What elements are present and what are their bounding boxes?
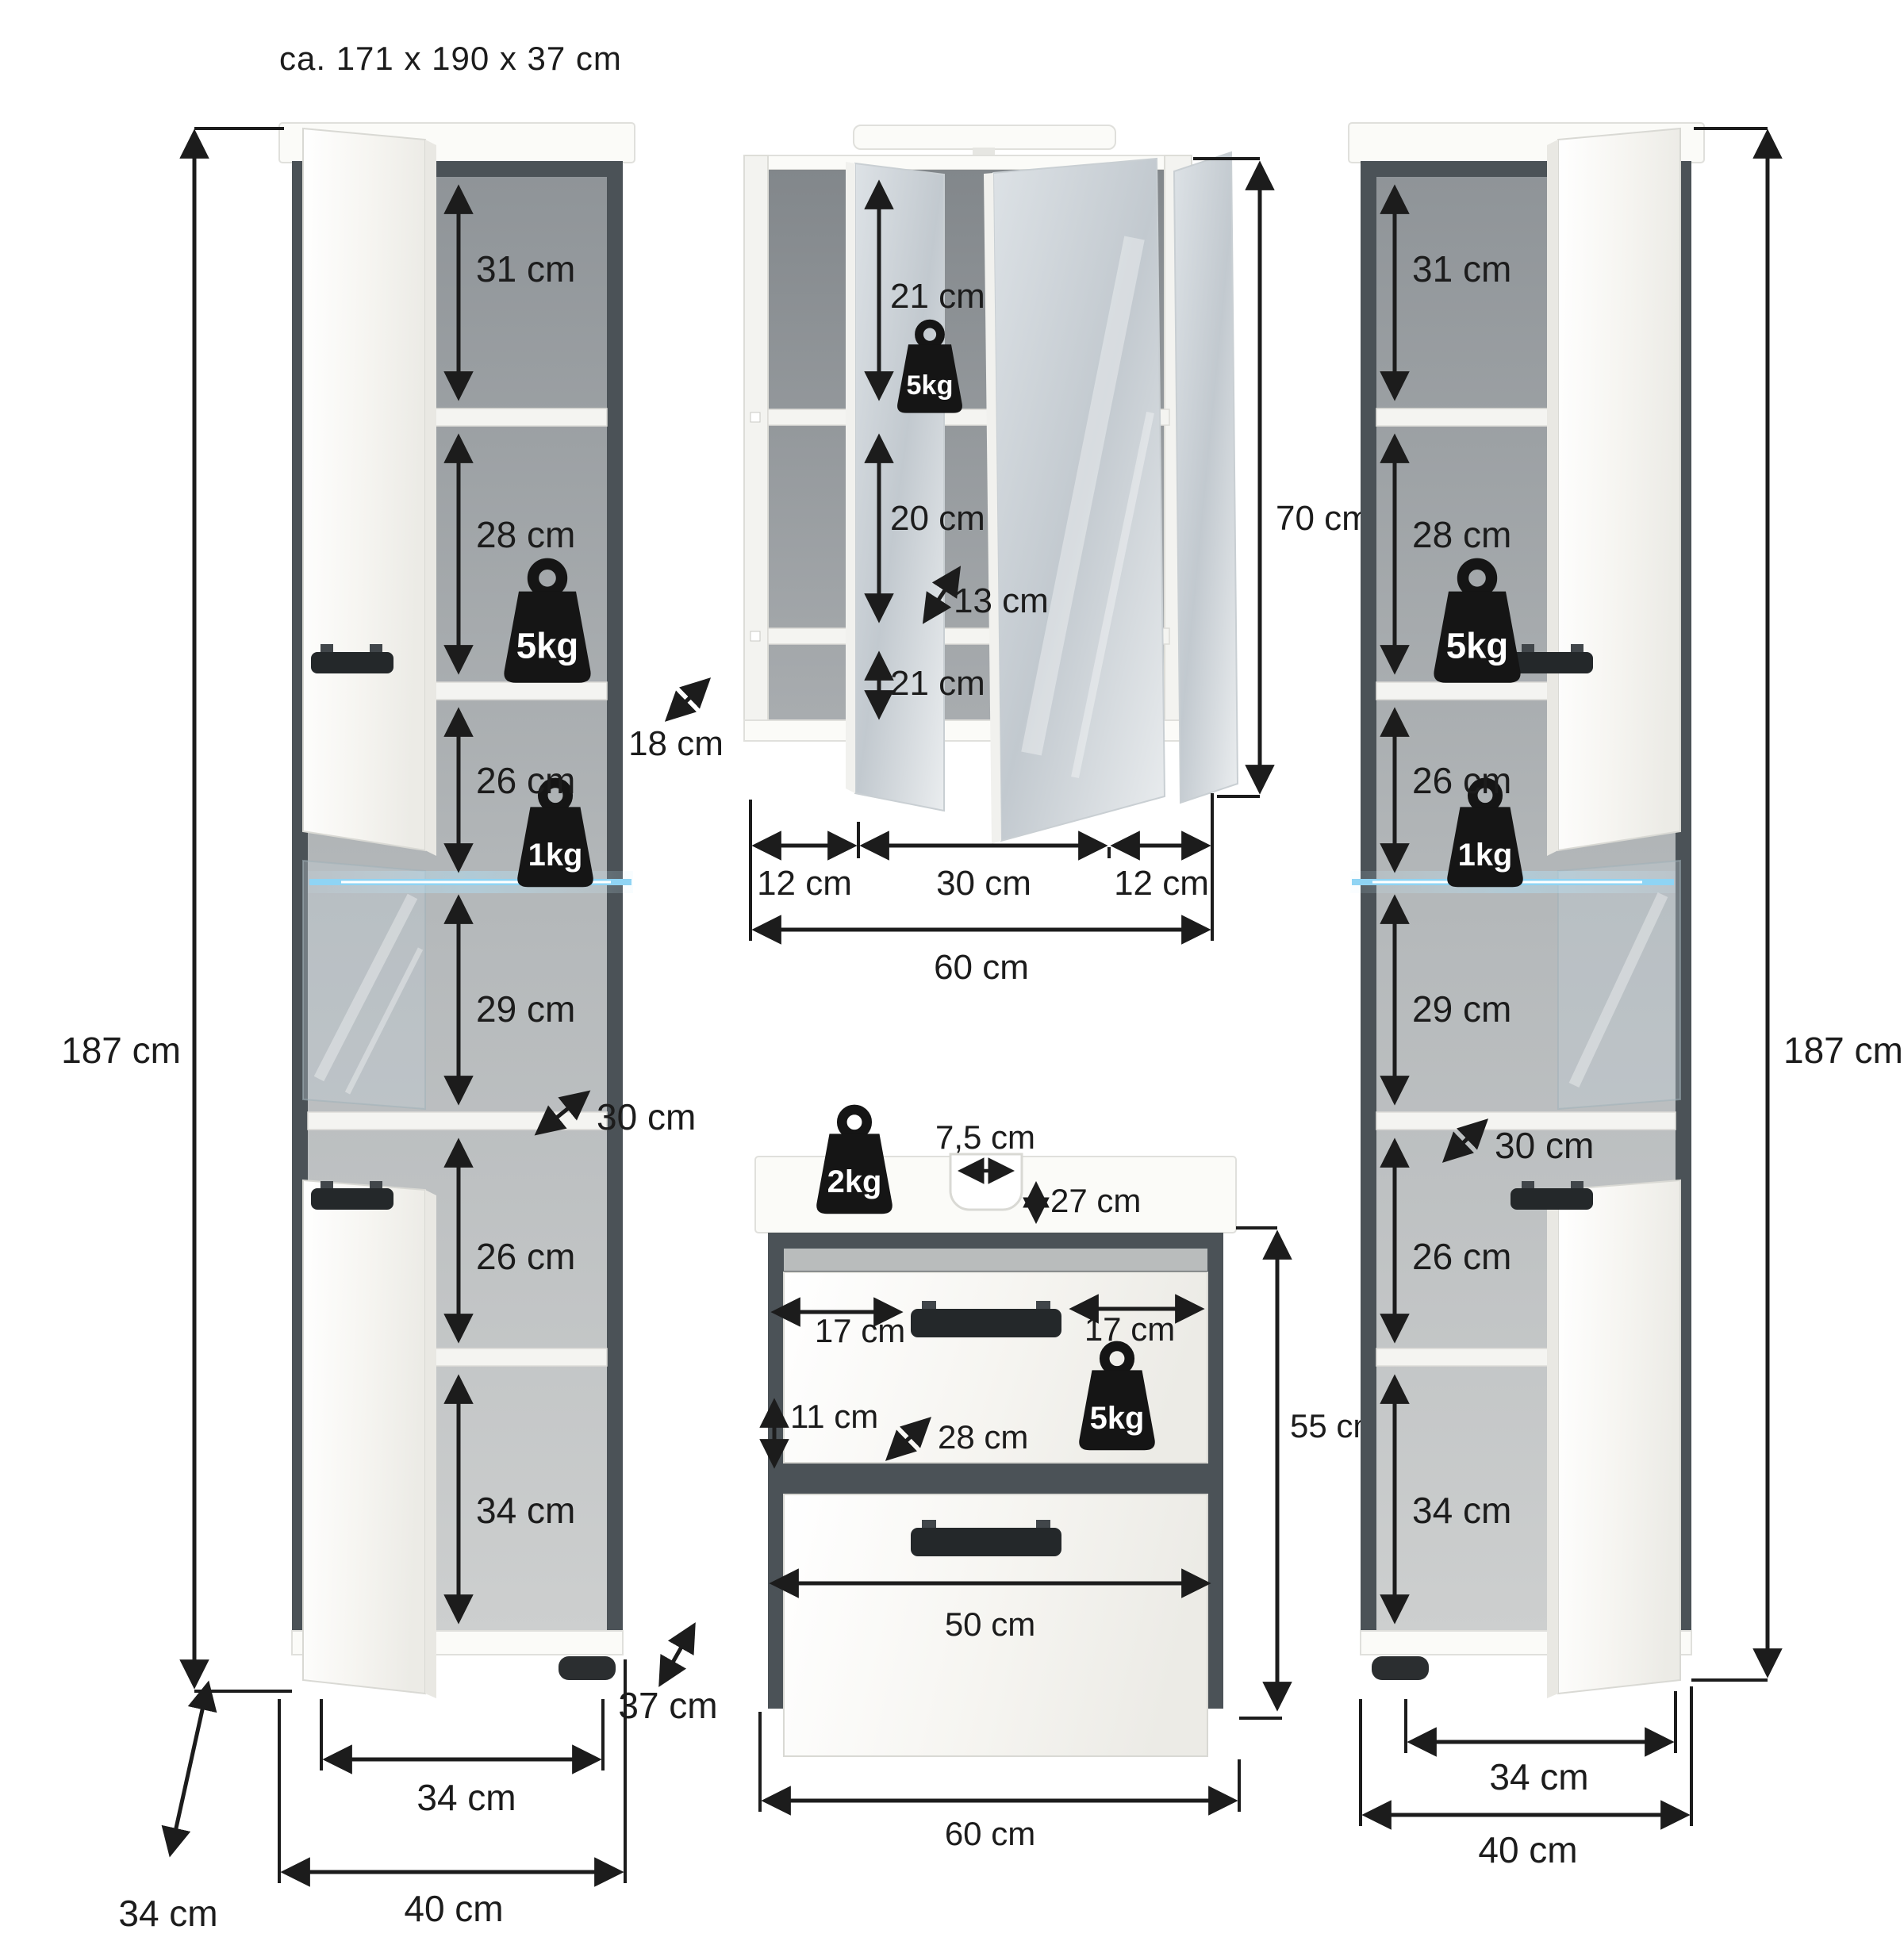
mirror-door-left (855, 163, 944, 811)
svg-text:11 cm: 11 cm (790, 1398, 878, 1435)
led-light-bar (854, 125, 1115, 149)
svg-text:5kg: 5kg (516, 626, 579, 666)
svg-text:18 cm: 18 cm (628, 724, 724, 763)
tall-cabinet-left: 5kg 1kg 31 cm 28 cm 26 cm 29 cm 26 cm (61, 123, 717, 1934)
svg-text:34 cm: 34 cm (476, 1490, 575, 1531)
mirror-door-left-edge (846, 162, 855, 793)
lower-door-open (1558, 1180, 1680, 1694)
svg-text:26 cm: 26 cm (476, 1236, 575, 1277)
upper-door-handle (1511, 652, 1593, 673)
dim-depth-side: 34 cm (118, 1685, 217, 1934)
open-slot (784, 1249, 1207, 1271)
svg-text:187 cm: 187 cm (61, 1030, 181, 1071)
svg-text:187 cm: 187 cm (1783, 1030, 1903, 1071)
furniture-dimension-sheet: ca. 171 x 190 x 37 cm 5kg (0, 0, 1904, 1945)
svg-text:60 cm: 60 cm (945, 1815, 1035, 1852)
lower-door-handle (1511, 1188, 1593, 1210)
sink-cabinet: 2kg 5kg 7,5 cm 27 cm 17 cm 17 cm 11 cm (755, 1110, 1380, 1852)
dim-height-187: 187 cm (61, 129, 292, 1691)
mirror-door-right (1174, 152, 1238, 803)
svg-text:20 cm: 20 cm (890, 499, 985, 538)
drawer-handle-upper (911, 1309, 1061, 1337)
svg-text:30 cm: 30 cm (936, 864, 1031, 903)
svg-text:30 cm: 30 cm (597, 1096, 696, 1137)
svg-text:30 cm: 30 cm (1495, 1125, 1594, 1166)
shelf-pin (750, 631, 760, 641)
lower-door-edge (1547, 1190, 1558, 1698)
svg-text:31 cm: 31 cm (476, 248, 575, 290)
svg-text:60 cm: 60 cm (934, 948, 1029, 987)
dim-depth-total: 37 cm (618, 1626, 717, 1726)
svg-text:40 cm: 40 cm (1478, 1829, 1577, 1870)
dim-depth-side: 18 cm (628, 681, 724, 763)
svg-text:34 cm: 34 cm (416, 1777, 516, 1818)
mirror-cabinet: 5kg 21 cm 20 cm 13 cm 21 cm 70 cm (628, 125, 1371, 987)
svg-text:17 cm: 17 cm (1084, 1310, 1175, 1348)
lower-door-open (303, 1180, 425, 1694)
upper-door-edge (1547, 140, 1558, 856)
svg-text:27 cm: 27 cm (1050, 1182, 1141, 1219)
dim-width-inner: 34 cm (1406, 1691, 1676, 1797)
svg-text:1kg: 1kg (528, 838, 583, 873)
dim-widths-bottom: 12 cm 30 cm 12 cm 60 cm (750, 793, 1212, 987)
svg-text:50 cm: 50 cm (945, 1605, 1035, 1643)
lower-door-edge (425, 1190, 436, 1698)
svg-text:34 cm: 34 cm (118, 1893, 217, 1934)
svg-text:21 cm: 21 cm (890, 664, 985, 703)
side-panel-left (744, 155, 768, 730)
svg-text:28 cm: 28 cm (476, 514, 575, 555)
svg-text:2kg: 2kg (827, 1164, 882, 1199)
dim-hole-inset: 27 cm (1036, 1182, 1141, 1220)
svg-text:29 cm: 29 cm (476, 988, 575, 1030)
cabinet-foot (559, 1656, 616, 1680)
svg-text:5kg: 5kg (1446, 626, 1509, 666)
lower-door-handle (311, 1188, 393, 1210)
svg-text:21 cm: 21 cm (890, 277, 985, 316)
dimension-diagram: ca. 171 x 190 x 37 cm 5kg (0, 0, 1904, 1945)
svg-text:26 cm: 26 cm (476, 760, 575, 801)
weight-2kg-icon: 2kg (816, 1110, 892, 1214)
svg-text:1kg: 1kg (1458, 838, 1513, 873)
upper-door-open (1558, 129, 1680, 850)
dim-width-inner: 34 cm (321, 1699, 603, 1818)
svg-text:13 cm: 13 cm (954, 581, 1049, 620)
svg-text:37 cm: 37 cm (618, 1685, 717, 1726)
cabinet-foot (1372, 1656, 1429, 1680)
dim-height-55: 55 cm (1236, 1228, 1380, 1718)
drawer-handle-lower (911, 1528, 1061, 1556)
svg-text:26 cm: 26 cm (1412, 760, 1511, 801)
svg-text:28 cm: 28 cm (1412, 514, 1511, 555)
svg-text:28 cm: 28 cm (938, 1418, 1028, 1456)
upper-door-edge (425, 140, 436, 856)
svg-text:26 cm: 26 cm (1412, 1236, 1511, 1277)
svg-text:12 cm: 12 cm (757, 864, 852, 903)
svg-text:34 cm: 34 cm (1412, 1490, 1511, 1531)
svg-text:34 cm: 34 cm (1489, 1756, 1588, 1797)
tall-cabinet-right: 5kg 1kg 31 cm 28 cm 26 cm 29 cm 26 cm 3 (1349, 123, 1903, 1870)
shelf-pin (750, 412, 760, 422)
upper-door-handle (311, 652, 393, 673)
overall-dimensions-title: ca. 171 x 190 x 37 cm (279, 40, 622, 77)
upper-door-open (303, 129, 425, 850)
svg-text:40 cm: 40 cm (404, 1888, 503, 1929)
svg-text:29 cm: 29 cm (1412, 988, 1511, 1030)
svg-text:12 cm: 12 cm (1114, 864, 1209, 903)
siphon-cutout (950, 1154, 1022, 1210)
svg-text:5kg: 5kg (907, 370, 954, 401)
dim-height-187: 187 cm (1691, 129, 1903, 1680)
svg-text:70 cm: 70 cm (1276, 499, 1371, 538)
svg-text:7,5 cm: 7,5 cm (935, 1118, 1035, 1156)
svg-text:5kg: 5kg (1090, 1401, 1145, 1436)
svg-text:17 cm: 17 cm (815, 1312, 905, 1349)
svg-text:31 cm: 31 cm (1412, 248, 1511, 290)
